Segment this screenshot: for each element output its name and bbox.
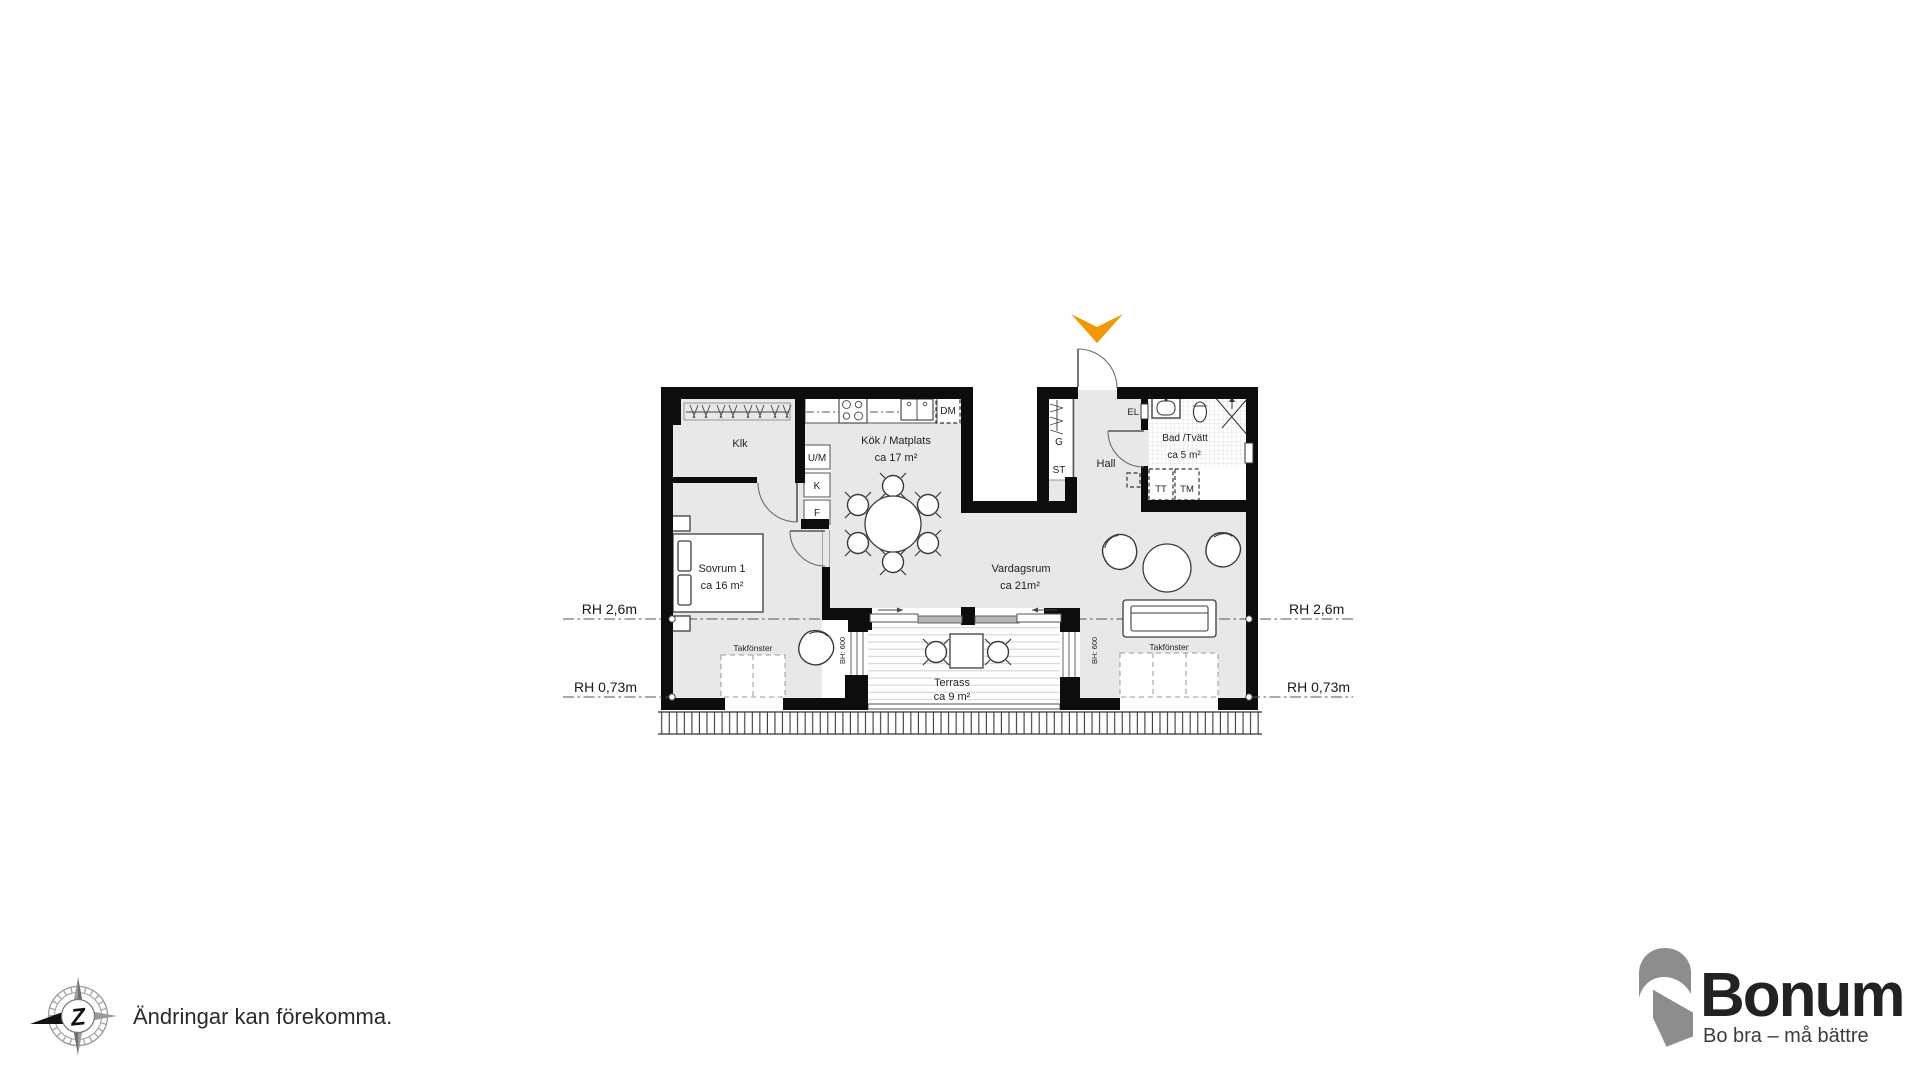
terrace-left-window xyxy=(848,632,868,675)
hall-label: Hall xyxy=(1097,458,1116,470)
klk-label: Klk xyxy=(732,438,748,450)
disclaimer-text: Ändringar kan förekomma. xyxy=(133,1004,392,1029)
sink-icon xyxy=(901,399,933,420)
page: DM U/M K F xyxy=(0,0,1920,1080)
window-height-right: BH: 600 xyxy=(1090,637,1099,664)
bath-label: Bad /Tvätt xyxy=(1162,433,1208,444)
bonum-logo: Bonum Bo bra – må bättre xyxy=(1639,948,1904,1048)
window-height-left: BH: 600 xyxy=(838,637,847,664)
brand-name: Bonum xyxy=(1700,961,1904,1030)
oven-micro-label: U/M xyxy=(808,453,826,464)
living-area: ca 21m² xyxy=(1000,580,1040,592)
bath-radiator xyxy=(1245,443,1253,463)
floorplan-canvas: DM U/M K F xyxy=(0,0,1920,1080)
dining-table xyxy=(865,496,921,552)
terrace-table xyxy=(950,634,983,668)
terrace-right-window xyxy=(1060,632,1080,677)
electrical-cabinet xyxy=(1141,404,1148,419)
skylight-label-left: Takfönster xyxy=(733,643,772,653)
kitchen-counter xyxy=(805,398,937,423)
rh-26-right: RH 2,6m xyxy=(1289,601,1344,617)
dryer-label: TT xyxy=(1155,484,1167,495)
wardrobe-cabinet-label: G xyxy=(1055,437,1063,448)
washer-label: TM xyxy=(1180,484,1194,495)
living-round-table xyxy=(1143,544,1191,592)
toilet-icon xyxy=(1194,402,1207,422)
terrace-area: ca 9 m² xyxy=(934,691,971,703)
rh-073-right: RH 0,73m xyxy=(1287,679,1350,695)
living-label: Vardagsrum xyxy=(991,563,1050,575)
compass-icon: Z xyxy=(30,977,117,1055)
brand-tagline: Bo bra – må bättre xyxy=(1703,1025,1869,1047)
electrical-label: EL xyxy=(1127,407,1139,418)
terrace-label: Terrass xyxy=(934,677,971,689)
sofa xyxy=(1123,600,1216,637)
bonum-logo-icon xyxy=(1639,948,1694,1048)
bath-area: ca 5 m² xyxy=(1167,450,1201,461)
kitchen-area: ca 17 m² xyxy=(875,452,918,464)
dishwasher-label: DM xyxy=(940,406,956,417)
freezer-label: F xyxy=(814,508,820,519)
cleaning-cabinet-label: ST xyxy=(1053,465,1066,476)
entry-door xyxy=(1078,349,1117,388)
bedroom-area: ca 16 m² xyxy=(701,580,744,592)
skylight-label-right: Takfönster xyxy=(1149,642,1188,652)
washbasin-icon xyxy=(1152,397,1180,418)
rh-073-left: RH 0,73m xyxy=(574,679,637,695)
facade-hatch-strip xyxy=(658,712,1262,734)
fridge-label: K xyxy=(814,481,821,492)
stove-icon xyxy=(839,398,867,423)
entry-arrow-icon xyxy=(1071,314,1123,343)
rh-26-left: RH 2,6m xyxy=(582,601,637,617)
kitchen-label: Kök / Matplats xyxy=(861,435,931,447)
bedroom-label: Sovrum 1 xyxy=(698,563,745,575)
kitchen-tall-cabinets: U/M K F xyxy=(804,445,830,524)
